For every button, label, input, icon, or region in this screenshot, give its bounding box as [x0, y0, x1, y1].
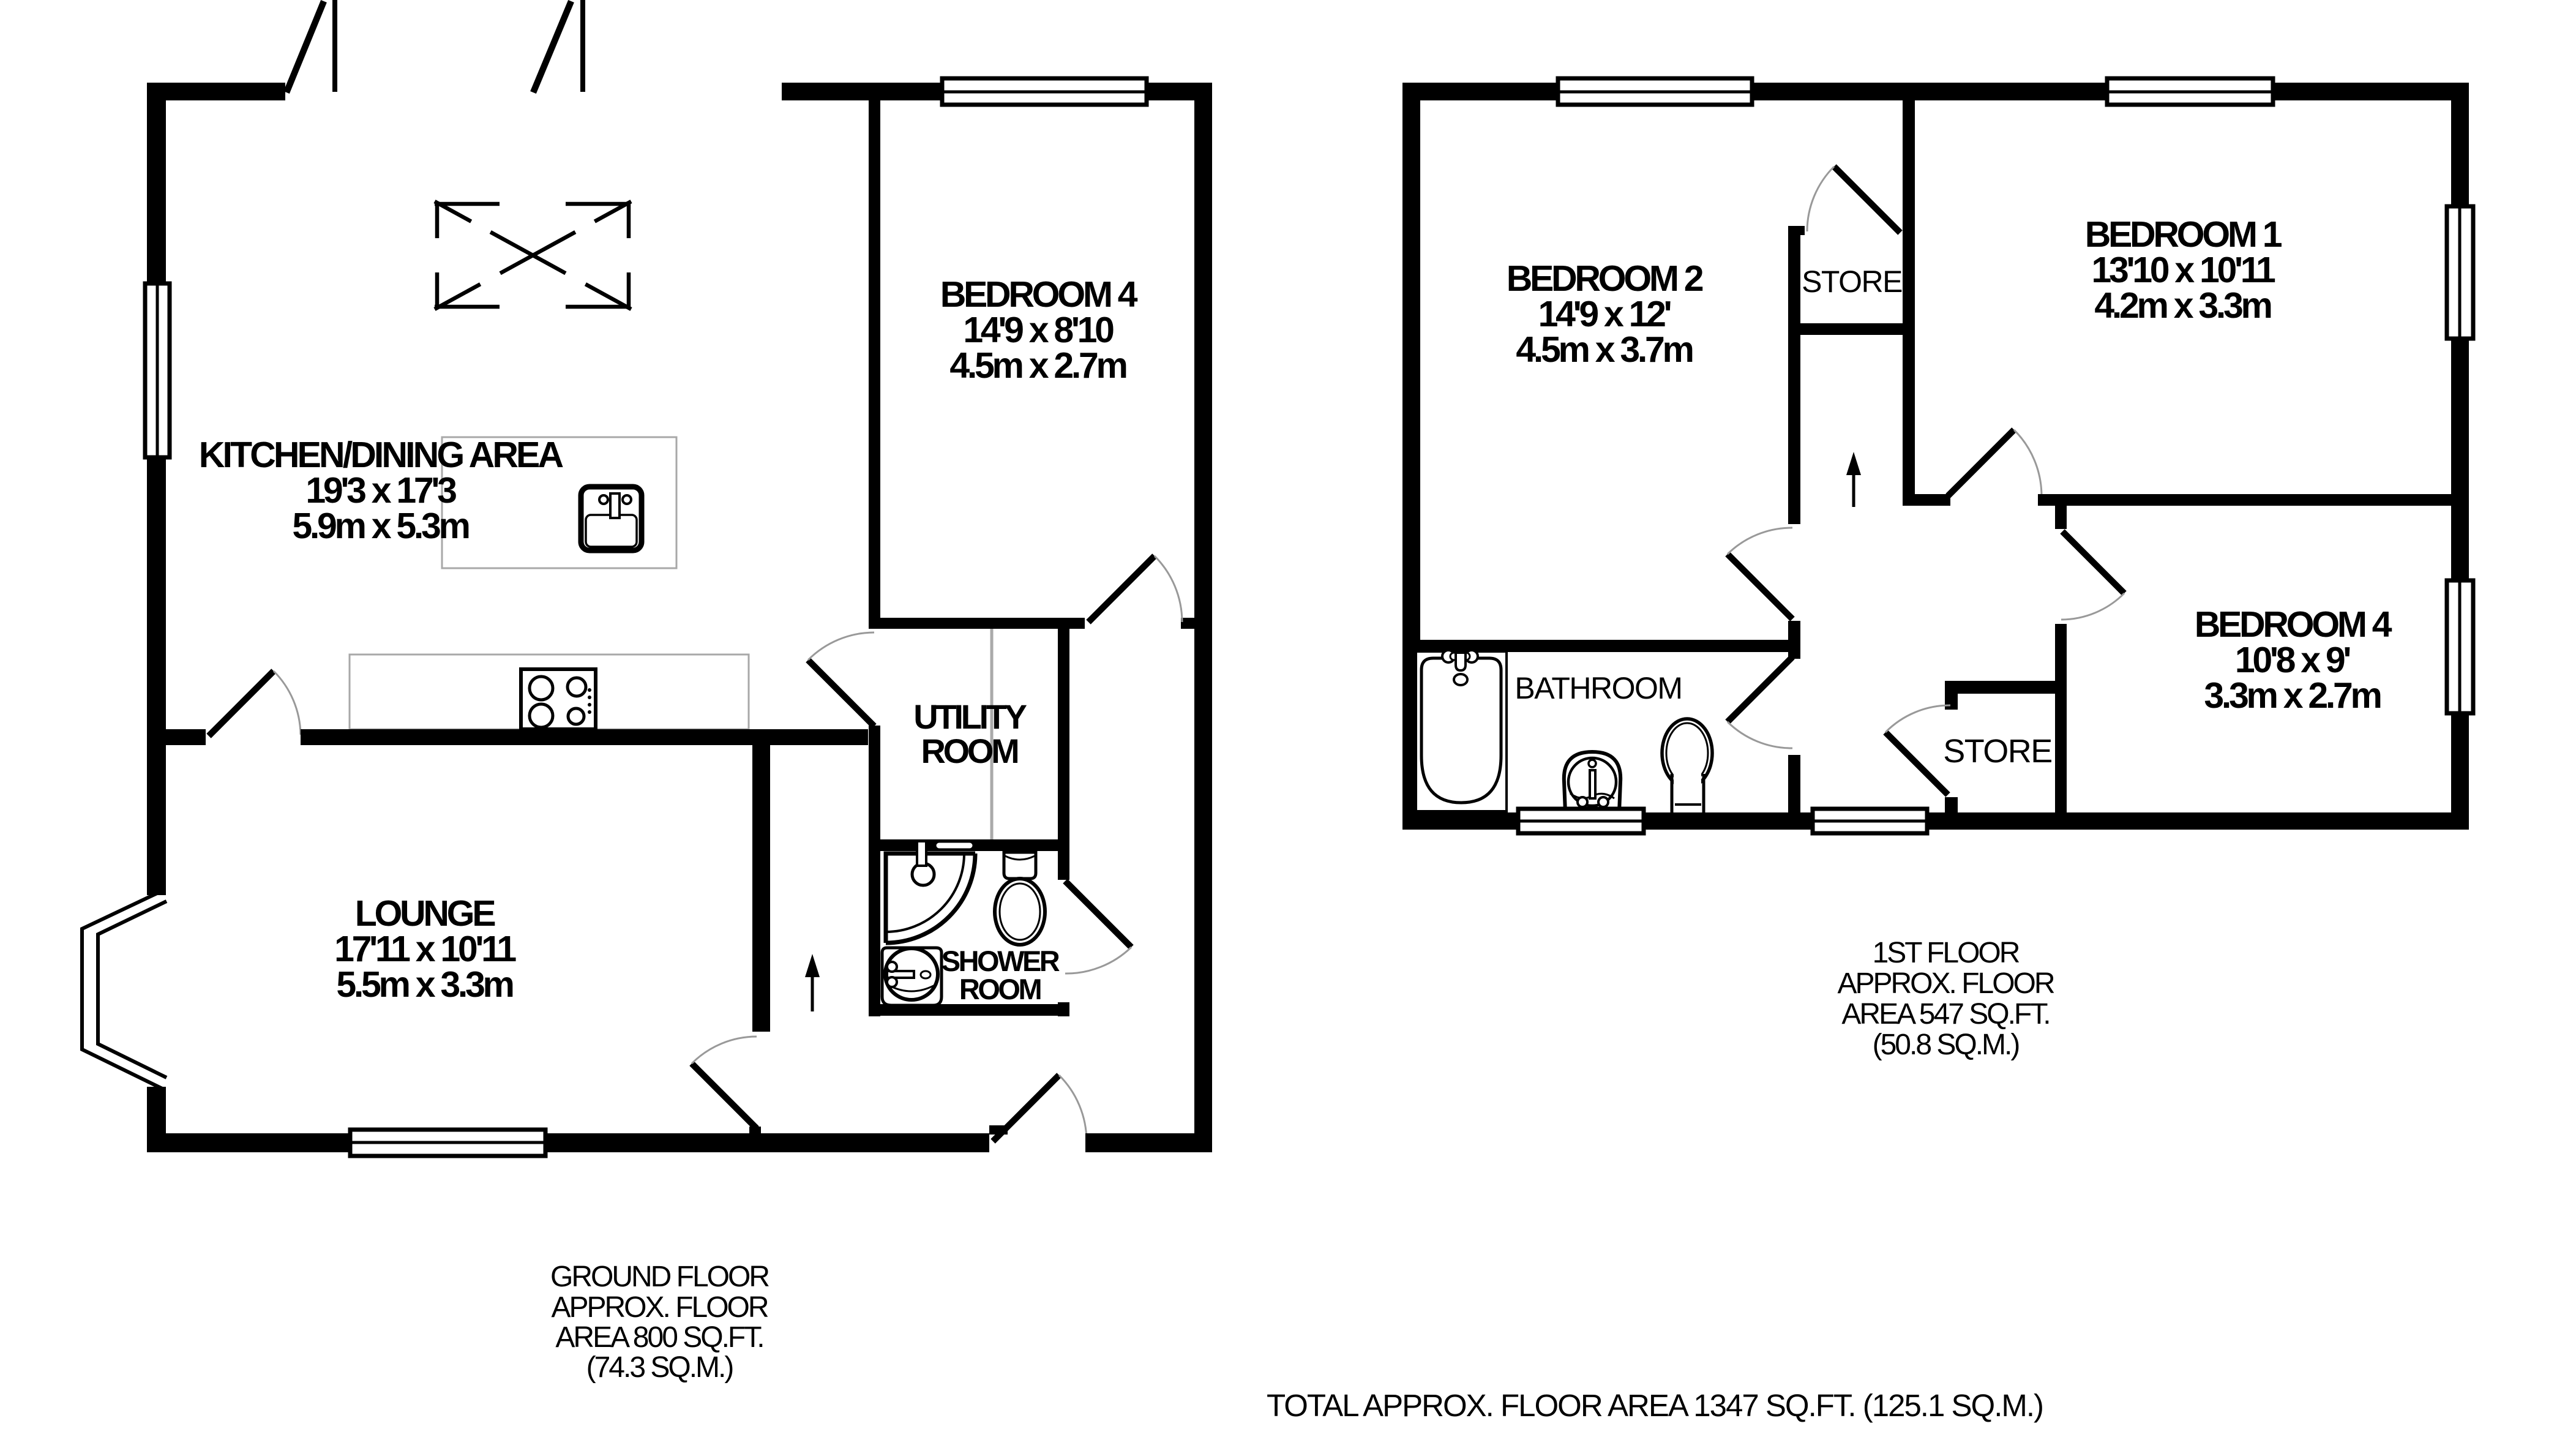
svg-text:(50.8 SQ.M.): (50.8 SQ.M.)	[1873, 1029, 2020, 1061]
svg-text:KITCHEN/DINING AREA: KITCHEN/DINING AREA	[199, 435, 564, 475]
svg-text:(74.3 SQ.M.): (74.3 SQ.M.)	[586, 1351, 733, 1384]
svg-text:STORE: STORE	[1943, 733, 2052, 770]
svg-text:14'9 x 12': 14'9 x 12'	[1538, 294, 1671, 334]
svg-text:AREA 547 SQ.FT.: AREA 547 SQ.FT.	[1841, 998, 2049, 1030]
svg-text:BEDROOM 4: BEDROOM 4	[2195, 604, 2392, 645]
svg-text:4.5m x 3.7m: 4.5m x 3.7m	[1516, 329, 1692, 370]
svg-text:BEDROOM 4: BEDROOM 4	[940, 274, 1138, 315]
svg-text:STORE: STORE	[1802, 264, 1902, 299]
svg-text:5.9m x 5.3m: 5.9m x 5.3m	[292, 506, 468, 546]
svg-text:1ST FLOOR: 1ST FLOOR	[1873, 937, 2020, 969]
svg-text:3.3m x 2.7m: 3.3m x 2.7m	[2204, 675, 2380, 716]
svg-text:BEDROOM 1: BEDROOM 1	[2085, 214, 2282, 255]
svg-text:4.2m x 3.3m: 4.2m x 3.3m	[2094, 285, 2271, 326]
svg-text:BATHROOM: BATHROOM	[1515, 671, 1682, 705]
svg-text:19'3 x 17'3: 19'3 x 17'3	[305, 470, 456, 511]
svg-text:4.5m x 2.7m: 4.5m x 2.7m	[949, 345, 1126, 386]
svg-text:5.5m x 3.3m: 5.5m x 3.3m	[336, 964, 512, 1005]
svg-text:13'10 x 10'11: 13'10 x 10'11	[2091, 250, 2275, 290]
svg-text:APPROX. FLOOR: APPROX. FLOOR	[551, 1291, 768, 1324]
svg-text:BEDROOM 2: BEDROOM 2	[1507, 258, 1703, 299]
svg-text:ROOM: ROOM	[959, 973, 1041, 1005]
svg-text:17'11 x 10'11: 17'11 x 10'11	[334, 929, 516, 969]
svg-text:ROOM: ROOM	[921, 732, 1017, 770]
svg-text:UTILITY: UTILITY	[913, 697, 1027, 736]
svg-text:LOUNGE: LOUNGE	[355, 893, 496, 934]
svg-text:AREA 800 SQ.FT.: AREA 800 SQ.FT.	[555, 1321, 763, 1354]
svg-text:TOTAL APPROX. FLOOR AREA 1347: TOTAL APPROX. FLOOR AREA 1347 SQ.FT. (12…	[1267, 1388, 2043, 1423]
svg-text:10'8 x 9': 10'8 x 9'	[2235, 640, 2349, 680]
svg-text:APPROX. FLOOR: APPROX. FLOOR	[1837, 967, 2054, 1000]
svg-text:14'9 x 8'10: 14'9 x 8'10	[963, 310, 1114, 350]
svg-text:GROUND FLOOR: GROUND FLOOR	[550, 1261, 769, 1293]
